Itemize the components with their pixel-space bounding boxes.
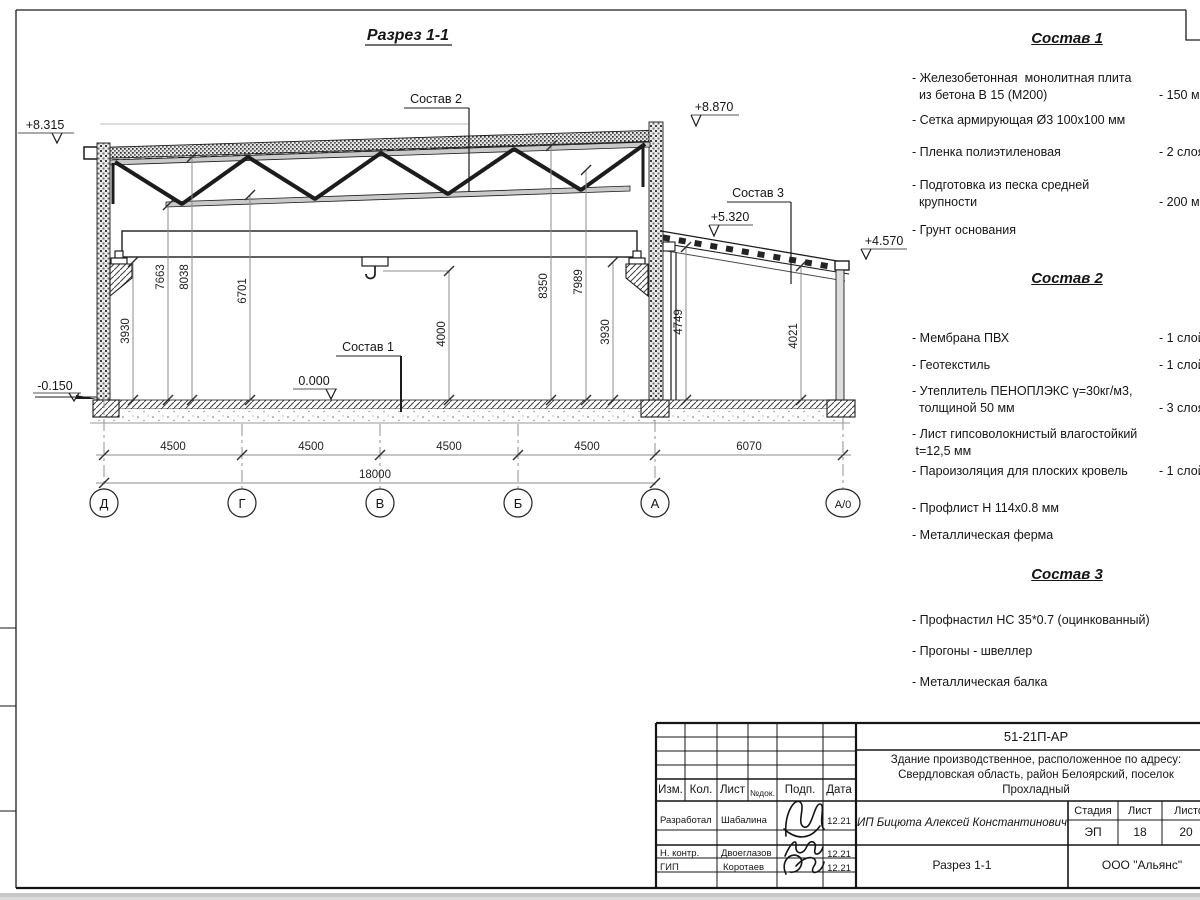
stage-value: ЭП: [1068, 825, 1118, 840]
col-podp: Подп.: [777, 783, 823, 798]
dim-3930-right: 3930: [600, 319, 612, 345]
axis-bubbles: Д Г В Б А А/0: [90, 489, 860, 517]
sheet-value: 18: [1118, 825, 1162, 840]
leader-sostav3: Состав 3: [727, 186, 791, 284]
dim-4000: 4000: [436, 321, 448, 347]
crane-hook: [362, 257, 388, 279]
right-corbel: [626, 251, 648, 296]
name-developer: Шабалина: [721, 813, 767, 828]
left-corbel: [110, 251, 132, 296]
list-item: - Геотекстиль- 1 слой: [912, 357, 1200, 374]
list-item-text: - Утеплитель ПЕНОПЛЭКС γ=30кг/м3, толщин…: [912, 383, 1200, 417]
list-item-text: - Пленка полиэтиленовая: [912, 144, 1200, 161]
list-item: - Сетка армирующая Ø3 100х100 мм: [912, 112, 1200, 129]
dim-6701: 6701: [237, 278, 249, 304]
list-item-value: - 200 мм: [1159, 194, 1200, 211]
list-item: - Утеплитель ПЕНОПЛЭКС γ=30кг/м3, толщин…: [912, 383, 1200, 417]
leader-sostav3-label: Состав 3: [732, 186, 784, 200]
annex-right-wall: [836, 270, 844, 400]
vertical-dimensions: 3930 7663 8038 6701 4000 8350 7989 3930 …: [120, 141, 806, 405]
list-item-text: - Прогоны - швеллер: [912, 643, 1200, 660]
sheets-value: 20: [1162, 825, 1200, 840]
list1-title: Состав 1: [912, 30, 1200, 47]
list-item: - Пароизоляция для плоских кровель- 1 сл…: [912, 463, 1200, 480]
annex: [661, 231, 849, 400]
doc-number: 51-21П-АР: [856, 729, 1200, 744]
list-item-text: - Подготовка из песка средней крупности: [912, 177, 1200, 211]
drawing-sheet: Разрез 1-1 Состав 2 Состав 1 Состав 3 +8…: [0, 0, 1200, 900]
dim-8350: 8350: [538, 273, 550, 299]
axis-label-b: Б: [514, 496, 523, 511]
name-ncontrol: Двоеглазов: [721, 846, 772, 861]
date-gip: 12.21: [823, 861, 855, 876]
dim-span-1: 4500: [160, 441, 186, 453]
elevation-floor: 0.000: [298, 374, 329, 388]
crane-beam: [122, 231, 637, 257]
list-item-text: - Грунт основания: [912, 222, 1200, 239]
list-item: - Пленка полиэтиленовая- 2 слоя: [912, 144, 1200, 161]
elevation-ground: -0.150: [37, 379, 72, 393]
elevation-arrow-icon: [52, 133, 62, 143]
list-item-text: - Лист гипсоволокнистый влагостойкий t=1…: [912, 426, 1200, 460]
list-item: - Прогоны - швеллер: [912, 643, 1200, 660]
list-item-text: - Железобетонная монолитная плита из бет…: [912, 70, 1200, 104]
elevation-annex-right: +4.570: [865, 234, 904, 248]
dim-total: 18000: [359, 469, 391, 481]
leader-sostav1-label: Состав 1: [342, 340, 394, 354]
dim-7663: 7663: [155, 264, 167, 290]
role-gip: ГИП: [660, 860, 679, 875]
scan-edge: [0, 893, 1200, 897]
foundation-left: [93, 400, 119, 417]
role-ncontrol: Н. контр.: [660, 846, 699, 861]
company-name: ООО "Альянс": [1068, 858, 1200, 873]
right-wall: [649, 122, 663, 400]
dim-span-5: 6070: [736, 441, 762, 453]
list-item-value: - 1 слой: [1159, 463, 1200, 480]
list-item-value: - 3 слоя: [1159, 400, 1200, 417]
elevation-arrow-icon: [691, 115, 701, 126]
list-item: - Железобетонная монолитная плита из бет…: [912, 70, 1200, 104]
role-developer: Разработал: [660, 813, 712, 828]
list-item-value: - 1 слой: [1159, 330, 1200, 347]
signatures: [784, 801, 824, 874]
foundation-mid: [641, 400, 669, 417]
list-item-value: - 150 мм: [1159, 87, 1200, 104]
list3-title: Состав 3: [912, 566, 1200, 583]
dim-span-3: 4500: [436, 441, 462, 453]
col-data: Дата: [823, 783, 855, 798]
elevation-arrow-icon: [709, 225, 719, 236]
col-kol: Кол.: [685, 783, 717, 798]
list-item-text: - Профлист Н 114х0.8 мм: [912, 500, 1200, 517]
col-ndok: №док.: [748, 786, 777, 801]
elevation-arrow-icon: [861, 249, 871, 259]
project-description: Здание производственное, расположенное п…: [856, 753, 1200, 798]
list-item: - Профнастил НС 35*0.7 (оцинкованный): [912, 612, 1200, 629]
floor: [35, 395, 855, 423]
dim-4021: 4021: [788, 323, 800, 349]
dim-4749: 4749: [673, 309, 685, 335]
list-item-text: - Сетка армирующая Ø3 100х100 мм: [912, 112, 1200, 129]
elevation-annex: +5.320: [711, 210, 750, 224]
list-item-text: - Профнастил НС 35*0.7 (оцинкованный): [912, 612, 1200, 629]
dim-span-4: 4500: [574, 441, 600, 453]
col-izm: Изм.: [656, 783, 685, 798]
axis-label-a0: А/0: [835, 499, 852, 511]
col-list: Лист: [717, 783, 748, 798]
axis-label-a: А: [651, 496, 660, 511]
list-item-text: - Пароизоляция для плоских кровель: [912, 463, 1200, 480]
sheets-header: Листов: [1162, 804, 1200, 819]
sheet-name: Разрез 1-1: [856, 858, 1068, 873]
axis-label-v: В: [376, 496, 385, 511]
list-item: - Мембрана ПВХ- 1 слой: [912, 330, 1200, 347]
list-item-text: - Мембрана ПВХ: [912, 330, 1200, 347]
left-wall: [97, 143, 110, 400]
list-item: - Металлическая ферма: [912, 527, 1200, 544]
list-item: - Лист гипсоволокнистый влагостойкий t=1…: [912, 426, 1200, 460]
list-item: - Подготовка из песка средней крупности-…: [912, 177, 1200, 211]
list-item-value: - 1 слой: [1159, 357, 1200, 374]
signature-dvoeglazov: [785, 842, 823, 856]
elevation-ridge: +8.870: [695, 100, 734, 114]
list-item: - Профлист Н 114х0.8 мм: [912, 500, 1200, 517]
date-developer: 12.21: [823, 814, 855, 829]
axis-label-g: Г: [238, 496, 245, 511]
stage-header: Стадия: [1068, 804, 1118, 819]
dim-7989: 7989: [573, 269, 585, 295]
date-ncontrol: 12.21: [823, 847, 855, 862]
list-item: - Грунт основания: [912, 222, 1200, 239]
list-item-text: - Геотекстиль: [912, 357, 1200, 374]
list-item-text: - Металлическая балка: [912, 674, 1200, 691]
elevation-left: +8.315: [26, 118, 65, 132]
elevation-arrow-icon: [326, 389, 336, 399]
dim-span-2: 4500: [298, 441, 324, 453]
dim-3930-left: 3930: [120, 318, 132, 344]
list-item-value: - 2 слоя: [1159, 144, 1200, 161]
dim-8038: 8038: [179, 264, 191, 290]
name-gip: Коротаев: [723, 860, 764, 875]
sheet-header: Лист: [1118, 804, 1162, 819]
leader-sostav2-label: Состав 2: [410, 92, 462, 106]
signature-shabalina: [784, 801, 824, 837]
list-item: - Металлическая балка: [912, 674, 1200, 691]
client-name: ИП Бицюта Алексей Константинович: [856, 816, 1068, 831]
section-title: Разрез 1-1: [367, 27, 449, 44]
list2-title: Состав 2: [912, 270, 1200, 287]
list-item-text: - Металлическая ферма: [912, 527, 1200, 544]
axis-label-d: Д: [100, 496, 109, 511]
foundation-right: [827, 400, 855, 417]
